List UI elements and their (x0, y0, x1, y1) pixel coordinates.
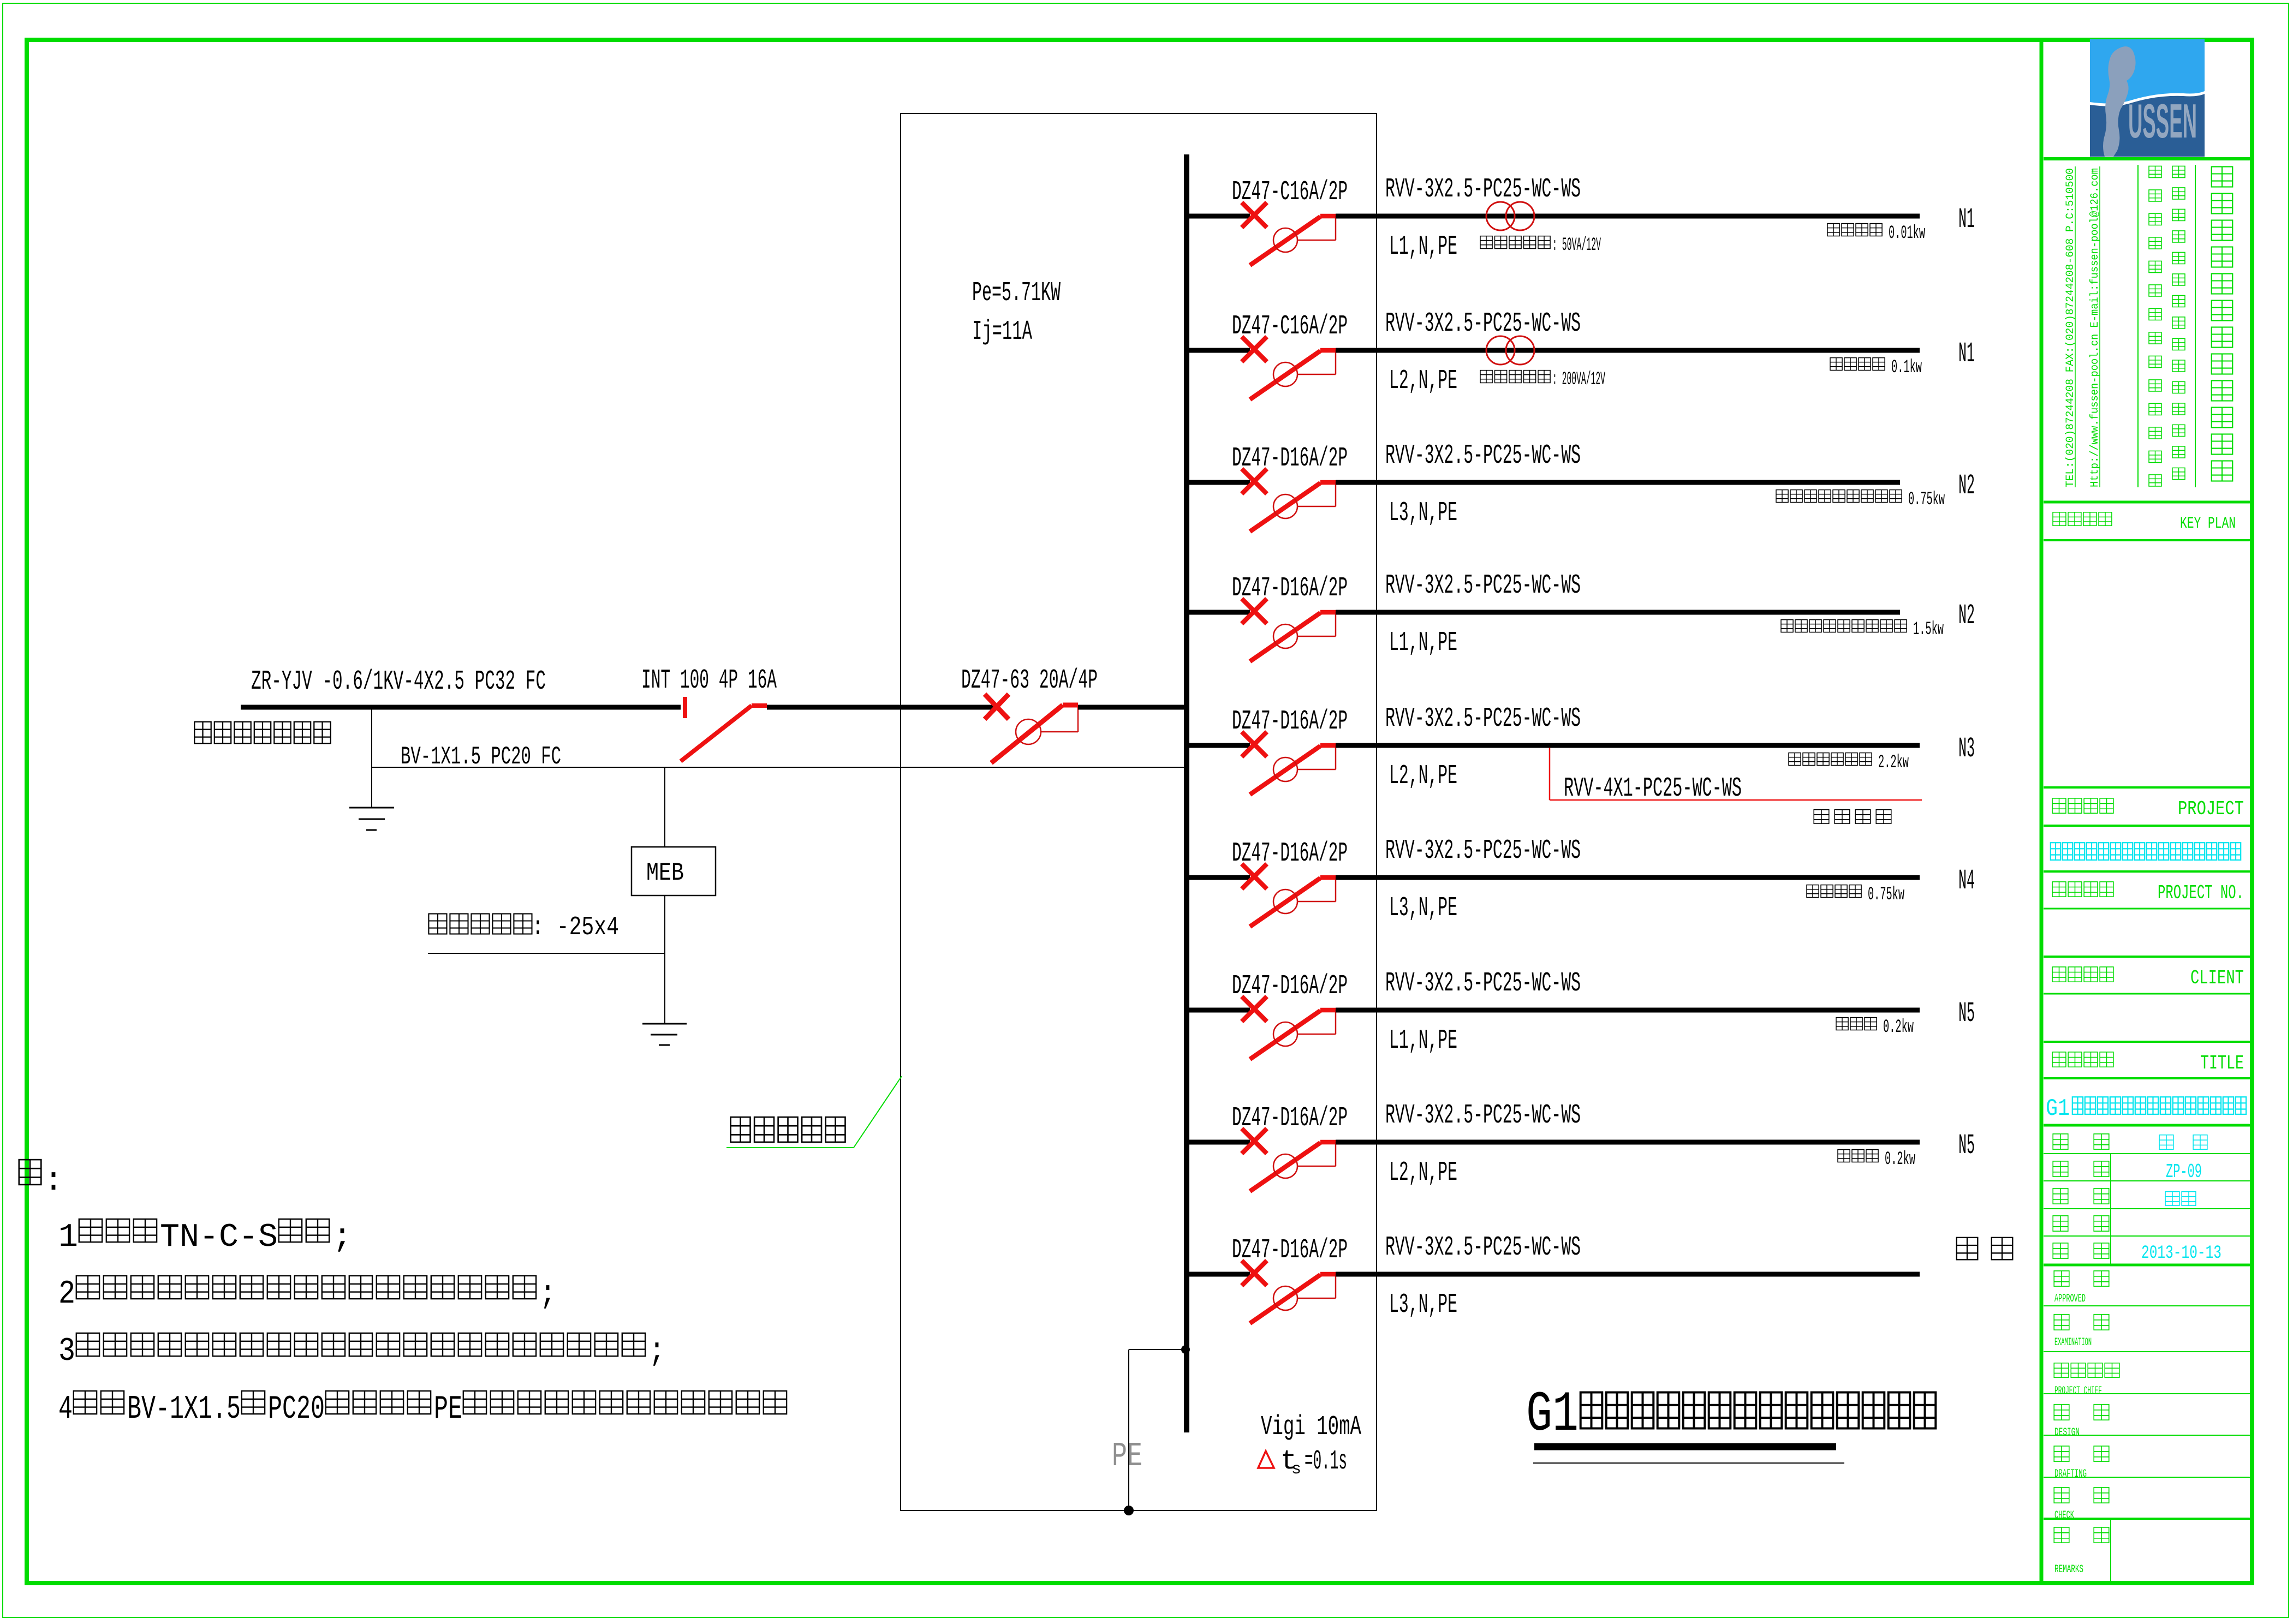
svg-text:0.75kw: 0.75kw (1908, 489, 1945, 510)
svg-text:N5: N5 (1958, 998, 1975, 1030)
svg-text:2: 2 (58, 1276, 75, 1313)
svg-text:RVV-3X2.5-PC25-WC-WS: RVV-3X2.5-PC25-WC-WS (1385, 570, 1581, 601)
svg-text:DZ47-C16A/2P: DZ47-C16A/2P (1232, 311, 1348, 342)
svg-text:L3,N,PE: L3,N,PE (1389, 1289, 1457, 1321)
svg-text:MEB: MEB (646, 859, 684, 887)
svg-text:L2,N,PE: L2,N,PE (1389, 1157, 1457, 1189)
svg-text:PC20: PC20 (268, 1391, 325, 1428)
svg-text:N4: N4 (1958, 865, 1975, 897)
svg-text:0.75kw: 0.75kw (1868, 885, 1904, 905)
svg-text:DZ47-D16A/2P: DZ47-D16A/2P (1232, 443, 1348, 474)
svg-text:RVV-3X2.5-PC25-WC-WS: RVV-3X2.5-PC25-WC-WS (1385, 835, 1581, 867)
svg-text:BV-1X1.5 PC20 FC: BV-1X1.5 PC20 FC (401, 743, 561, 771)
svg-text:L3,N,PE: L3,N,PE (1389, 498, 1457, 529)
svg-text:APPROVED: APPROVED (2054, 1293, 2086, 1305)
svg-text:;: ; (648, 1333, 665, 1370)
svg-text:DZ47-D16A/2P: DZ47-D16A/2P (1232, 971, 1348, 1002)
svg-text:L3,N,PE: L3,N,PE (1389, 893, 1457, 924)
svg-text:USSEN: USSEN (2128, 94, 2197, 148)
svg-text:1.5kw: 1.5kw (1913, 619, 1944, 640)
svg-text:PROJECT: PROJECT (2178, 798, 2244, 820)
svg-text:DZ47-D16A/2P: DZ47-D16A/2P (1232, 706, 1348, 737)
svg-text:: 200VA/12V: : 200VA/12V (1552, 369, 1605, 390)
svg-text:2.2kw: 2.2kw (1878, 753, 1909, 773)
svg-text:4: 4 (58, 1391, 73, 1428)
svg-text:L1,N,PE: L1,N,PE (1389, 628, 1457, 659)
svg-text:N3: N3 (1958, 733, 1975, 765)
svg-text:DZ47-D16A/2P: DZ47-D16A/2P (1232, 573, 1348, 604)
svg-text:RVV-3X2.5-PC25-WC-WS: RVV-3X2.5-PC25-WC-WS (1385, 174, 1581, 205)
svg-text:DZ47-D16A/2P: DZ47-D16A/2P (1232, 1235, 1348, 1266)
svg-text:ZR-YJV -0.6/1KV-4X2.5 PC32 FC: ZR-YJV -0.6/1KV-4X2.5 PC32 FC (251, 666, 546, 697)
svg-text:N2: N2 (1958, 600, 1975, 632)
svg-text:Pe=5.71KW: Pe=5.71KW (972, 278, 1061, 309)
svg-text:;: ; (539, 1276, 556, 1313)
svg-text:PE: PE (1112, 1437, 1142, 1476)
svg-text:DZ47-63 20A/4P: DZ47-63 20A/4P (961, 665, 1098, 696)
svg-text:2013-10-13: 2013-10-13 (2141, 1243, 2221, 1264)
svg-text:;: ; (332, 1219, 352, 1256)
svg-text:3: 3 (58, 1333, 75, 1370)
svg-text:0.01kw: 0.01kw (1889, 223, 1925, 244)
svg-text:RVV-3X2.5-PC25-WC-WS: RVV-3X2.5-PC25-WC-WS (1385, 968, 1581, 999)
svg-text:RVV-3X2.5-PC25-WC-WS: RVV-3X2.5-PC25-WC-WS (1385, 1100, 1581, 1131)
svg-text:=0.1s: =0.1s (1305, 1446, 1347, 1477)
svg-text:N1: N1 (1958, 338, 1975, 370)
svg-text:0.1kw: 0.1kw (1891, 357, 1922, 378)
svg-text:N1: N1 (1958, 204, 1975, 236)
svg-text:EXAMINATION: EXAMINATION (2054, 1336, 2092, 1349)
svg-text:INT 100 4P 16A: INT 100 4P 16A (641, 665, 777, 696)
svg-text:PE: PE (434, 1391, 462, 1428)
svg-text:PROJECT NO.: PROJECT NO. (2158, 882, 2244, 904)
svg-text:L2,N,PE: L2,N,PE (1389, 761, 1457, 792)
svg-text:RVV-3X2.5-PC25-WC-WS: RVV-3X2.5-PC25-WC-WS (1385, 308, 1581, 339)
svg-text:RVV-4X1-PC25-WC-WS: RVV-4X1-PC25-WC-WS (1564, 773, 1742, 804)
svg-text:ZP-09: ZP-09 (2166, 1161, 2202, 1183)
svg-text:: 50VA/12V: : 50VA/12V (1552, 235, 1601, 256)
svg-text:TN-C-S: TN-C-S (160, 1219, 278, 1256)
svg-text:BV-1X1.5: BV-1X1.5 (127, 1391, 241, 1428)
svg-text:RVV-3X2.5-PC25-WC-WS: RVV-3X2.5-PC25-WC-WS (1385, 703, 1581, 735)
svg-text:: -25x4: : -25x4 (532, 913, 619, 942)
svg-text:0.2kw: 0.2kw (1883, 1017, 1914, 1038)
svg-text::: : (44, 1163, 63, 1200)
svg-text:RVV-3X2.5-PC25-WC-WS: RVV-3X2.5-PC25-WC-WS (1385, 440, 1581, 471)
svg-text:DESIGN: DESIGN (2054, 1426, 2080, 1439)
svg-text:G1: G1 (1526, 1383, 1579, 1447)
svg-text:L1,N,PE: L1,N,PE (1389, 231, 1457, 262)
svg-text:s: s (1291, 1460, 1301, 1479)
svg-text:DZ47-D16A/2P: DZ47-D16A/2P (1232, 838, 1348, 869)
svg-text:DRAFTING: DRAFTING (2054, 1468, 2087, 1480)
svg-text:G1: G1 (2046, 1095, 2070, 1123)
svg-text:Ij=11A: Ij=11A (972, 317, 1032, 348)
svg-text:CLIENT: CLIENT (2190, 967, 2244, 989)
svg-text:N2: N2 (1958, 470, 1975, 502)
svg-text:0.2kw: 0.2kw (1885, 1149, 1915, 1170)
svg-text:DZ47-D16A/2P: DZ47-D16A/2P (1232, 1103, 1348, 1134)
svg-text:L2,N,PE: L2,N,PE (1389, 366, 1457, 397)
svg-text:KEY PLAN: KEY PLAN (2180, 515, 2236, 533)
svg-text:CHECK: CHECK (2054, 1509, 2074, 1522)
svg-text:PROJECT CHIEF: PROJECT CHIEF (2054, 1385, 2102, 1398)
svg-text:DZ47-C16A/2P: DZ47-C16A/2P (1232, 177, 1348, 208)
svg-text:REMARKS: REMARKS (2054, 1563, 2083, 1576)
svg-text:1: 1 (58, 1219, 78, 1256)
svg-text:N5: N5 (1958, 1130, 1975, 1162)
svg-text:L1,N,PE: L1,N,PE (1389, 1025, 1457, 1056)
svg-text:TITLE: TITLE (2200, 1052, 2244, 1074)
svg-text:Vigi 10mA: Vigi 10mA (1261, 1412, 1361, 1443)
svg-text:RVV-3X2.5-PC25-WC-WS: RVV-3X2.5-PC25-WC-WS (1385, 1232, 1581, 1263)
